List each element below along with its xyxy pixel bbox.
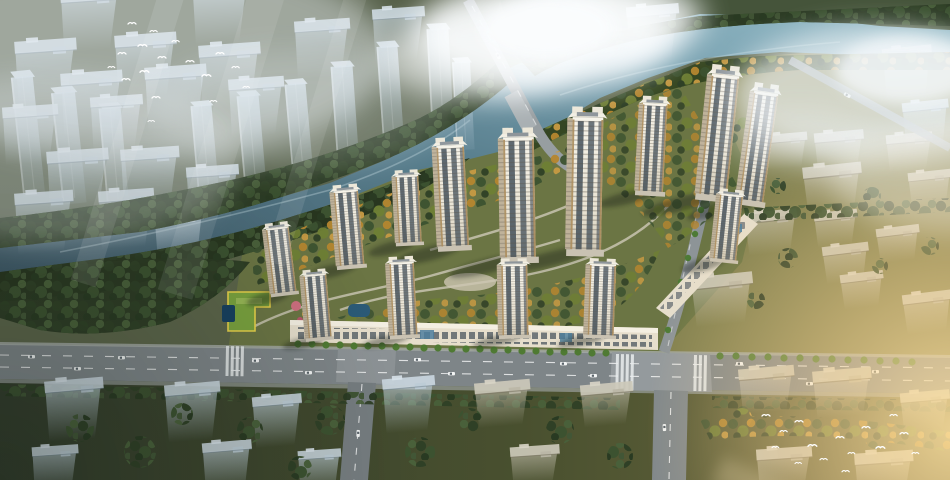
aerial-rendering: Aerial rendering of a riverside resident… <box>0 0 950 480</box>
tower <box>565 106 608 256</box>
tower <box>498 127 540 263</box>
tower <box>497 258 532 339</box>
